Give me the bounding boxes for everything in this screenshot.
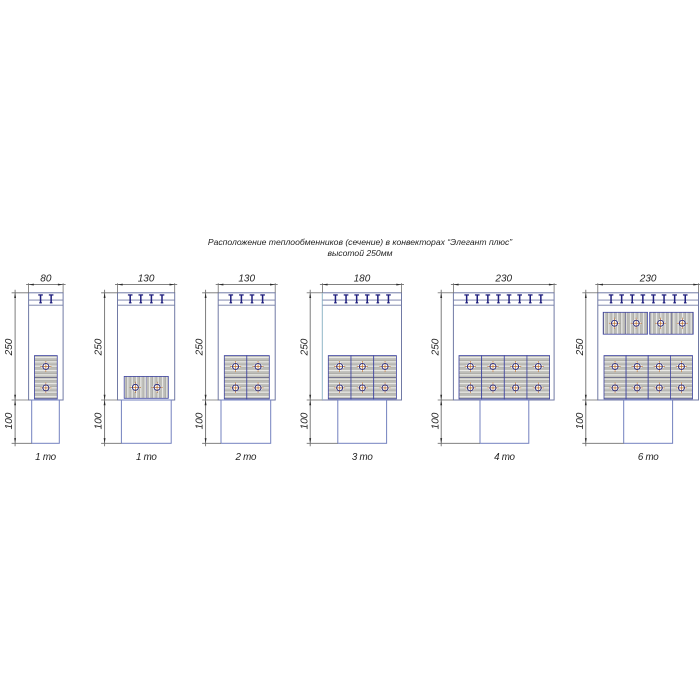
svg-text:130: 130 [138, 274, 155, 285]
svg-text:2 то: 2 то [235, 452, 257, 463]
svg-text:100: 100 [299, 412, 310, 429]
svg-text:250: 250 [430, 338, 441, 356]
svg-text:80: 80 [40, 274, 52, 285]
svg-text:Расположение теплообменников (: Расположение теплообменников (сечение) в… [208, 237, 513, 247]
svg-text:100: 100 [195, 412, 206, 429]
svg-text:высотой 250мм: высотой 250мм [327, 248, 392, 258]
svg-text:250: 250 [575, 338, 586, 356]
svg-text:3 то: 3 то [352, 452, 373, 463]
svg-text:130: 130 [238, 274, 255, 285]
svg-text:1 то: 1 то [136, 452, 157, 463]
svg-text:100: 100 [430, 412, 441, 429]
svg-text:250: 250 [195, 338, 206, 356]
svg-text:250: 250 [299, 338, 310, 356]
svg-text:250: 250 [4, 338, 15, 356]
svg-text:230: 230 [639, 274, 657, 285]
svg-text:230: 230 [494, 274, 512, 285]
svg-text:100: 100 [4, 412, 15, 429]
svg-text:1 то: 1 то [35, 452, 56, 463]
svg-text:4 то: 4 то [494, 452, 515, 463]
svg-text:6 то: 6 то [638, 452, 659, 463]
svg-text:100: 100 [94, 412, 105, 429]
svg-text:250: 250 [94, 338, 105, 356]
svg-text:180: 180 [354, 274, 371, 285]
svg-text:100: 100 [575, 412, 586, 429]
